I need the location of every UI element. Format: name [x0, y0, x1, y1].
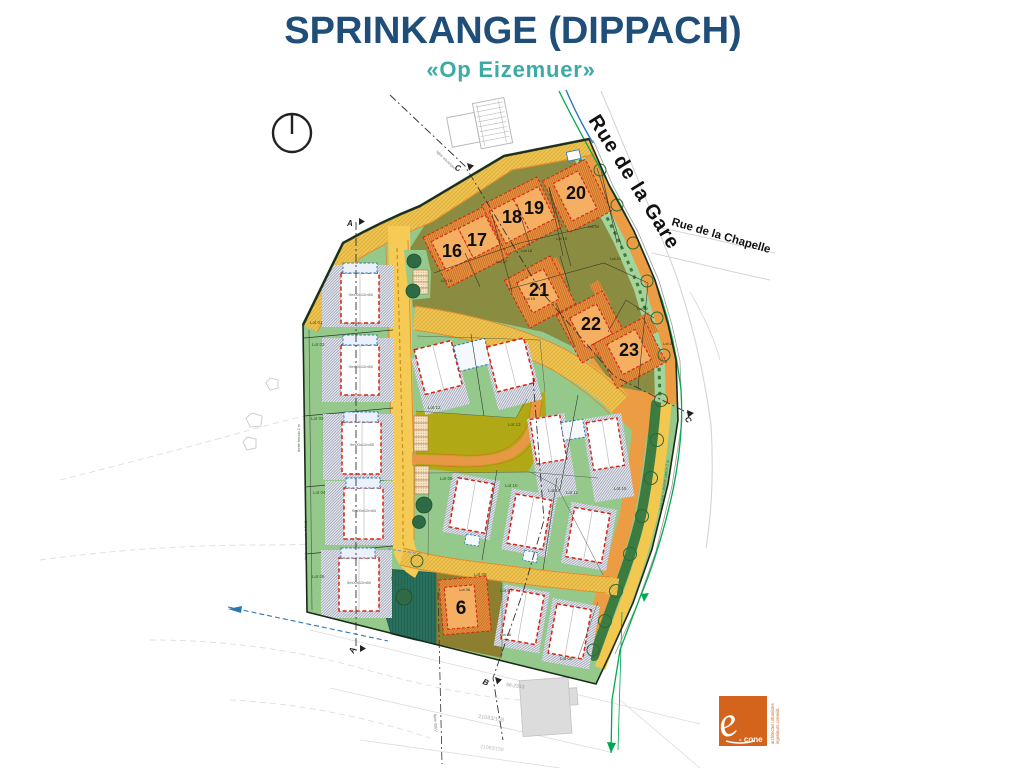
svg-text:Lot 10: Lot 10: [505, 483, 518, 488]
svg-text:Lot 08: Lot 08: [560, 656, 573, 661]
svg-text:19: 19: [524, 198, 544, 218]
svg-text:22: 22: [581, 314, 601, 334]
svg-text:9m00x12m50: 9m00x12m50: [347, 580, 372, 585]
svg-text:Lot 01: Lot 01: [310, 320, 323, 325]
svg-text:Lot 15: Lot 15: [614, 486, 627, 491]
svg-text:Lot 16: Lot 16: [441, 278, 453, 283]
svg-text:Lot 12: Lot 12: [428, 405, 441, 410]
svg-text:Lot 17: Lot 17: [496, 259, 508, 264]
svg-text:18: 18: [502, 207, 522, 227]
svg-text:- cone: - cone: [739, 735, 763, 744]
svg-text:«Op Eizemuer»: «Op Eizemuer»: [426, 57, 595, 82]
svg-text:Lot 06: Lot 06: [459, 587, 471, 592]
svg-text:Lot 21: Lot 21: [610, 256, 622, 261]
svg-text:6: 6: [456, 598, 467, 619]
svg-text:16: 16: [442, 241, 462, 261]
svg-text:Lot 19: Lot 19: [556, 236, 568, 241]
svg-text:Lot 05: Lot 05: [312, 574, 325, 579]
svg-text:Lot 09: Lot 09: [440, 476, 453, 481]
svg-text:9m00x12m50: 9m00x12m50: [349, 364, 374, 369]
svg-text:A: A: [346, 219, 353, 228]
svg-text:SPRINKANGE (DIPPACH): SPRINKANGE (DIPPACH): [284, 10, 741, 52]
svg-text:Lot 02: Lot 02: [312, 342, 325, 347]
svg-text:17: 17: [467, 230, 487, 250]
svg-text:9m00x12m50: 9m00x12m50: [349, 292, 374, 297]
svg-text:Lot 11: Lot 11: [566, 490, 579, 495]
svg-text:20: 20: [566, 183, 586, 203]
svg-text:23: 23: [619, 340, 639, 360]
svg-text:Lot 04: Lot 04: [313, 490, 326, 495]
svg-text:Lot 03: Lot 03: [311, 416, 324, 421]
svg-text:ligne 65kV: ligne 65kV: [433, 714, 438, 732]
svg-text:Lot 66: Lot 66: [500, 632, 512, 637]
svg-text:ingenieurs conseils: ingenieurs conseils: [775, 708, 780, 744]
svg-text:Lot 18: Lot 18: [521, 248, 533, 253]
svg-text:limite terrain 2 m: limite terrain 2 m: [297, 424, 301, 452]
svg-text:9m00x12m50: 9m00x12m50: [350, 442, 375, 447]
svg-text:Lot 22: Lot 22: [637, 306, 649, 311]
svg-text:Lot 20: Lot 20: [588, 224, 600, 229]
svg-text:Lot 13: Lot 13: [508, 422, 521, 427]
